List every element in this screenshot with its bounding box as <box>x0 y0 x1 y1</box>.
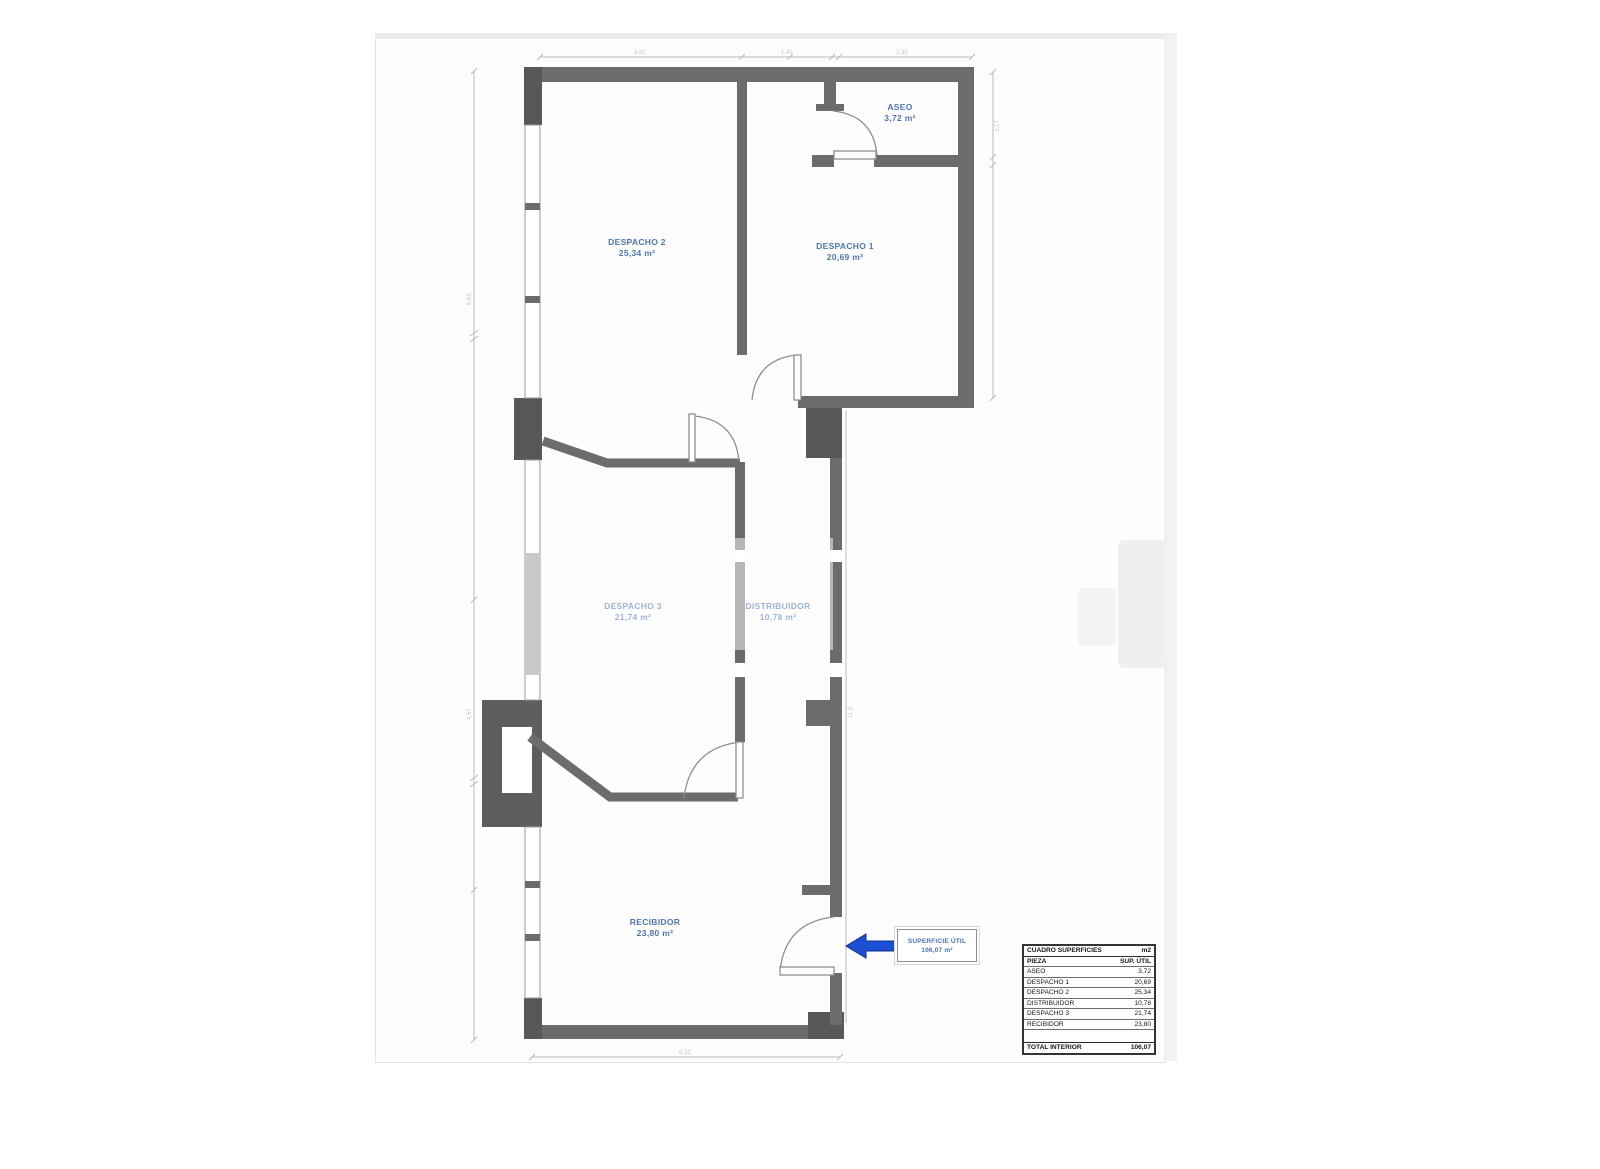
callout-value: 106,07 m² <box>898 946 976 955</box>
door-aseo <box>833 111 877 159</box>
table-row: RECIBIDOR23,80 <box>1024 1020 1154 1031</box>
table-header-row: PIEZASUP. ÚTIL <box>1024 957 1154 968</box>
floor-plan-page: 3,42 1,41 2,35 6,31 8,65 4,57 3,17 11,9 <box>0 0 1600 1169</box>
dim-left-lower: 4,57 <box>467 708 473 720</box>
table-row: DISTRIBUIDOR10,78 <box>1024 999 1154 1010</box>
dim-right: 3,17 <box>995 120 1001 132</box>
door-despacho1 <box>752 355 801 400</box>
surface-arrow-icon <box>846 934 897 958</box>
dim-bottom: 6,31 <box>679 1050 691 1056</box>
superficie-util-callout: SUPERFICIE ÚTIL 106,07 m² <box>897 929 977 962</box>
room-label-distribuidor: DISTRIBUIDOR10,78 m² <box>746 601 811 623</box>
table-row: ASEO3,72 <box>1024 967 1154 978</box>
door-despacho3 <box>684 742 743 798</box>
room-label-despacho-2: DESPACHO 225,34 m² <box>608 237 666 259</box>
table-row: DESPACHO 225,34 <box>1024 988 1154 999</box>
table-row: DESPACHO 120,69 <box>1024 978 1154 989</box>
dim-inner-right: 11,9 <box>848 706 854 718</box>
table-title-row: CUADRO SUPERFICIESm2 <box>1024 946 1154 957</box>
room-label-recibidor: RECIBIDOR23,80 m² <box>630 917 680 939</box>
dim-top-3: 2,35 <box>896 50 908 56</box>
table-spacer <box>1024 1030 1154 1042</box>
dim-top-1: 3,42 <box>634 50 646 56</box>
table-total-row: TOTAL INTERIOR106,07 <box>1024 1042 1154 1053</box>
dim-top-2: 1,41 <box>781 50 793 56</box>
callout-title: SUPERFICIE ÚTIL <box>898 937 976 946</box>
dim-left-upper: 8,65 <box>467 293 473 305</box>
room-label-aseo: ASEO3,72 m² <box>884 102 915 124</box>
window-wall <box>525 125 540 998</box>
floor-plan-drawing: 3,42 1,41 2,35 6,31 8,65 4,57 3,17 11,9 <box>0 0 1600 1169</box>
room-label-despacho-3: DESPACHO 321,74 m² <box>604 601 662 623</box>
surface-table: CUADRO SUPERFICIESm2 PIEZASUP. ÚTIL ASEO… <box>1022 944 1156 1055</box>
room-label-despacho-1: DESPACHO 120,69 m² <box>816 241 874 263</box>
watermark-haze <box>548 538 833 650</box>
door-despacho2 <box>689 414 739 462</box>
table-row: DESPACHO 321,74 <box>1024 1009 1154 1020</box>
door-entrance <box>780 917 834 975</box>
